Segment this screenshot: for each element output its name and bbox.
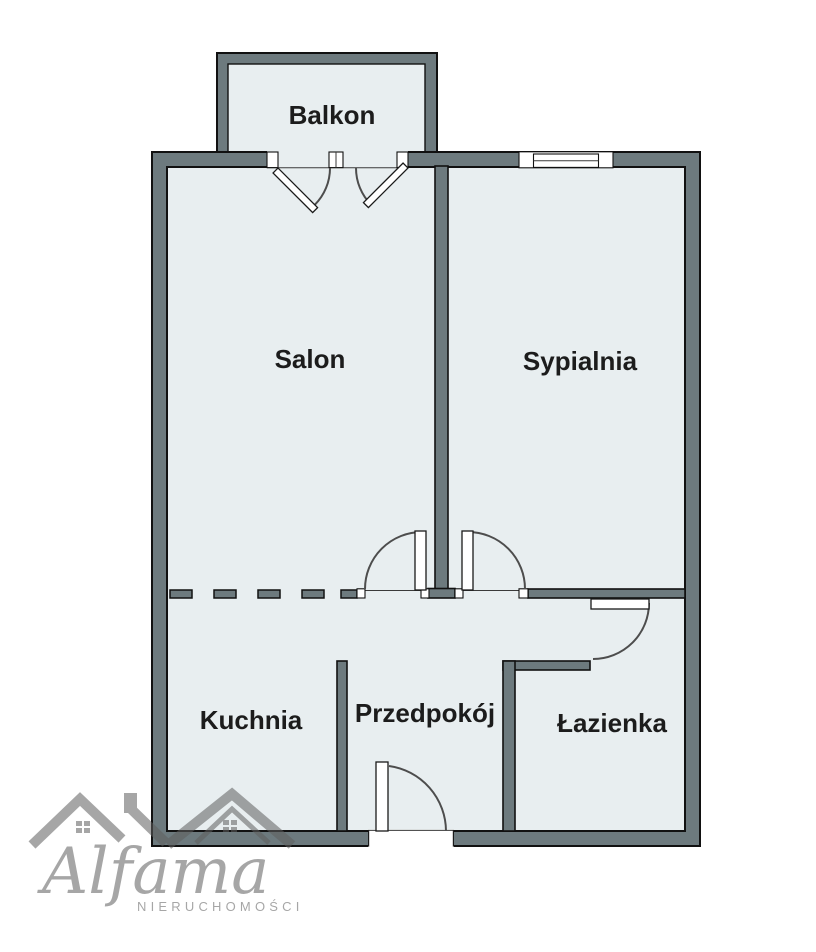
logo-subtitle-text: NIERUCHOMOŚCI	[137, 899, 304, 914]
dash-segment	[341, 590, 357, 598]
dash-segment	[170, 590, 192, 598]
wall-lazienka-top	[503, 661, 590, 670]
dash-segment	[302, 590, 324, 598]
room-label-balkon: Balkon	[289, 100, 376, 130]
room-label-sypialnia: Sypialnia	[523, 346, 638, 376]
jamb-wall-end	[519, 589, 528, 598]
floor-plan: Balkon Salon Sypialnia Kuchnia Przedpokó…	[0, 0, 816, 952]
entrance-door-leaf	[376, 762, 388, 831]
door-sypialnia-leaf	[462, 531, 473, 590]
door-lazienka-leaf	[591, 599, 649, 609]
floor-plan-canvas: Balkon Salon Sypialnia Kuchnia Przedpokó…	[0, 0, 816, 952]
door-salon-leaf	[415, 531, 426, 590]
room-label-przedpokoj: Przedpokój	[355, 698, 495, 728]
room-label-lazienka: Łazienka	[557, 708, 667, 738]
dash-segment	[214, 590, 236, 598]
wall-divider-foot	[428, 589, 455, 599]
entrance-opening	[368, 830, 454, 848]
wall-salon-sypialnia	[435, 166, 448, 590]
dash-segment	[258, 590, 280, 598]
wall-lazienka-left	[503, 661, 515, 831]
room-label-kuchnia: Kuchnia	[200, 705, 303, 735]
balcony-jamb-left	[267, 152, 278, 168]
wall-sypialnia-bottom	[528, 589, 685, 598]
logo-brand-text: Alfama	[37, 835, 269, 909]
bedroom-window	[519, 152, 613, 168]
room-label-salon: Salon	[275, 344, 346, 374]
wall-kuchnia-przedpokoj	[337, 661, 347, 831]
jamb-dash-end	[357, 589, 365, 598]
